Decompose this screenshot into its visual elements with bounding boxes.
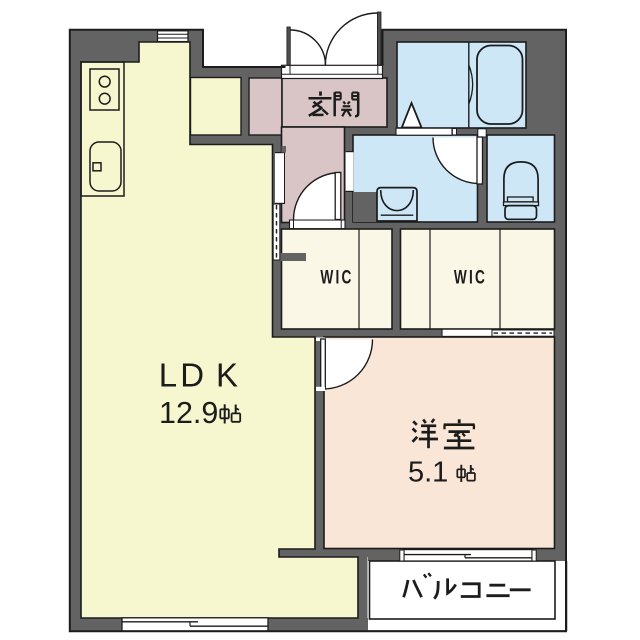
svg-text:12.9: 12.9 [159,396,218,430]
svg-text:K: K [216,357,238,394]
svg-text:WIC: WIC [454,266,487,288]
svg-text:D: D [180,357,204,394]
svg-text:5.1: 5.1 [408,457,448,489]
svg-text:WIC: WIC [320,266,353,288]
svg-text:L: L [159,357,177,394]
